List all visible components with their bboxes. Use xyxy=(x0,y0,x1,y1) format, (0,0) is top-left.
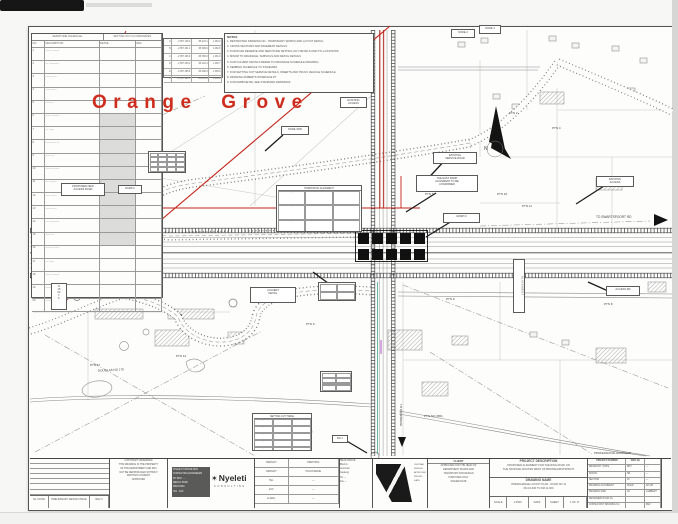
project-number-cell: SECTION xyxy=(588,478,626,483)
drawing-name-lines: INTERCHANGE LAYOUT PLAN - ROAD NO 11KM 1… xyxy=(490,483,587,491)
cell: ——— — xyxy=(45,206,100,218)
cell: ·· xyxy=(100,285,136,297)
label-line: NODE 2 xyxy=(453,31,474,34)
scale-sheet-cell: SHEET xyxy=(546,497,563,508)
scale-sheet-cell: 1:2500 xyxy=(507,497,528,508)
grid-cell xyxy=(273,419,292,426)
grid-cell: – xyxy=(254,440,273,447)
coord-cell: -2 857 266.9 xyxy=(172,54,192,60)
project-number-row: CONSULTANT DRAWING NoREV xyxy=(588,503,661,508)
map-text: TO BRONBERG xyxy=(399,404,402,426)
cell: 11 xyxy=(32,180,45,192)
coord-cell: 1 463.2 xyxy=(209,39,222,45)
coord-cell: -58 288.9 xyxy=(192,69,209,75)
label-box: RAMP D xyxy=(443,213,480,223)
label-box: NODE 2 xyxy=(451,29,475,38)
label-line: DETAIL xyxy=(252,292,295,295)
schedule-title-left: SERVITUDE SCHEDULE xyxy=(32,34,104,40)
coordinate-table: A-2 857 139.0-58 423.11 463.2B-2 857 201… xyxy=(163,38,223,78)
grid-cell xyxy=(333,191,361,206)
coord-cell: -2 857 139.0 xyxy=(172,39,192,45)
coord-cell: C xyxy=(164,54,172,60)
title-block: No / DATEPRELIMINARY DESIGN ISSUEREV 0 C… xyxy=(30,458,671,508)
notes-box: NOTES 1. RESTRICTED DRAWING NO - TEMPORA… xyxy=(224,33,374,93)
client-line: SIGNED DATE xyxy=(428,480,489,484)
coord-cell: -58 322.4 xyxy=(192,61,209,67)
col-header: REF xyxy=(136,41,162,47)
label-box: ACCESS RD xyxy=(606,286,640,296)
label-grid: –– xyxy=(320,284,355,300)
contact-row: E-MAIL— xyxy=(255,495,339,504)
scanned-drawing-page: Orange Grove SERVITUDE SCHEDULE SETTING … xyxy=(0,0,678,524)
contact-cell: E-MAIL xyxy=(255,495,289,503)
grid-cell xyxy=(336,385,351,390)
project-number-cell: — xyxy=(645,465,661,470)
map-text: PTN 8 xyxy=(604,303,613,306)
data-table-box: SETTING OUT TABLE––––– xyxy=(252,413,312,451)
label-box: EXISTINGSERVICE ROAD xyxy=(433,152,477,164)
drawing-name-zone: DRAWING NAME INTERCHANGE LAYOUT PLAN - R… xyxy=(490,478,587,497)
schedule-title-right: SETTING OUT CO-ORDINATES xyxy=(104,34,163,40)
coord-cell: 1 462.8 xyxy=(209,46,222,52)
contact-cell: POLOKWANE xyxy=(289,468,339,476)
cell: ——— —— xyxy=(45,167,100,179)
cell: ·· xyxy=(100,233,136,245)
servitude-schedule-table: SERVITUDE SCHEDULE SETTING OUT CO-ORDINA… xyxy=(31,33,163,298)
project-number-cell xyxy=(626,497,645,502)
cell: 19 xyxy=(32,285,45,297)
address-line: TEL · FAX xyxy=(173,490,209,494)
grid-cell xyxy=(158,167,167,172)
cell xyxy=(136,74,162,86)
contact-cell: BRANCH xyxy=(255,468,289,476)
project-number-cell: A0 xyxy=(626,490,645,495)
project-number-cell: REV xyxy=(645,503,661,508)
cell: 13 xyxy=(32,206,45,218)
map-text: PTN 11 xyxy=(522,205,532,208)
data-table-box: –––––– xyxy=(148,151,186,173)
cell xyxy=(136,259,162,271)
cell xyxy=(136,61,162,73)
project-number-cell: LAMBERT xyxy=(645,490,661,495)
grid-cell: – xyxy=(150,167,159,172)
scale-sheet-cell: SCALE xyxy=(490,497,507,508)
houses xyxy=(458,36,647,345)
grid-cell xyxy=(292,440,311,447)
project-number-cell: DRAWING SIZE xyxy=(588,490,626,495)
map-text: PROFESSIONAL ENGINEER xyxy=(594,452,631,455)
project-number-cell: PROJECT NUMBER xyxy=(588,459,626,464)
map-text: PTN 12 xyxy=(176,355,186,358)
project-number-cell: — xyxy=(645,478,661,483)
map-text: PTN NO 3651 xyxy=(424,415,443,418)
data-table-box: HORIZONTAL ALIGNMENT––– xyxy=(276,185,362,232)
scale-sheet-row: SCALE1:2500DATESHEET1 OF 17 xyxy=(490,497,587,508)
coord-cell: -58 389.6 xyxy=(192,46,209,52)
project-number-cell: DRAWING ALIGNMENT xyxy=(588,484,626,489)
project-number-cell xyxy=(626,503,645,508)
contact-cell: — xyxy=(289,486,339,494)
cell: 12 xyxy=(32,193,45,205)
cell xyxy=(136,127,162,139)
label-grid: ––– xyxy=(278,191,361,233)
cell: — ———— xyxy=(45,219,100,231)
cell: ·· xyxy=(100,61,136,73)
client-lines: APPROVED FOR THE HEAD OFDEPARTMENT ROADS… xyxy=(428,464,489,484)
cell: ——— — xyxy=(45,74,100,86)
grid-cell: – xyxy=(254,433,273,440)
contact-cell: FAX xyxy=(255,486,289,494)
cell: ·· xyxy=(100,154,136,166)
cell xyxy=(136,114,162,126)
coord-cell: -2 857 461.3 xyxy=(172,76,192,82)
project-number-cell: 16 xyxy=(626,478,645,483)
grid-cell xyxy=(337,284,355,292)
copyright-line: APPROVED xyxy=(110,478,167,482)
cell: —— — xyxy=(45,154,100,166)
grid-cell xyxy=(273,433,292,440)
grid-cell xyxy=(292,447,311,452)
project-number-cell: NR xyxy=(626,472,645,477)
cell xyxy=(136,299,162,311)
cell: 18 xyxy=(32,272,45,284)
cell: 10 xyxy=(32,167,45,179)
cell xyxy=(136,48,162,60)
area-title: Orange Grove xyxy=(92,92,309,114)
label-line: ACCESS xyxy=(342,102,366,105)
project-number-cell xyxy=(645,497,661,502)
project-description-lines: PROPOSED ALIGNMENT FOR THE RING ROAD ONT… xyxy=(490,464,587,472)
label-line: X· xyxy=(53,297,66,300)
label-box: THE EAST RAMPALIGNMENT TO BECONFIRMED xyxy=(416,175,478,192)
cell: 1 xyxy=(32,48,45,60)
project-number-cell: RPV xyxy=(626,465,645,470)
head-office-line: Fax — xyxy=(340,480,372,484)
coord-cell: B xyxy=(164,46,172,52)
schedule-row: 2— ————·· xyxy=(32,61,162,74)
grid-cell: – xyxy=(176,167,185,172)
label-box: EXISTINGACCESS xyxy=(596,176,634,187)
design-line: DATE xyxy=(414,480,426,484)
grid-cell xyxy=(273,440,292,447)
grid-cell: – xyxy=(278,191,306,206)
cell xyxy=(136,219,162,231)
contact-row: BRANCHPOLOKWANE xyxy=(255,468,339,477)
cell: 20 xyxy=(32,299,45,311)
cell xyxy=(100,127,136,139)
label-line: ACCESS ROAD xyxy=(63,188,104,191)
grid-cell xyxy=(292,426,311,433)
label-box: NODE 3 xyxy=(479,25,501,34)
cell xyxy=(136,233,162,245)
cell: —— — xyxy=(45,233,100,245)
label-box: CULVERTDETAIL xyxy=(250,287,296,303)
map-text: N xyxy=(484,147,488,152)
design-approval-note: CENTRALDESIGNAPPROVEDPR ENGDATE xyxy=(414,459,426,508)
coord-cell: -2 857 330.2 xyxy=(172,61,192,67)
schedule-row: 6—— ———·· xyxy=(32,114,162,127)
label-box: RAMP A xyxy=(118,185,142,194)
department-logo-section: CENTRALDESIGNAPPROVEDPR ENGDATE xyxy=(373,459,428,508)
label-line: ACCESS xyxy=(598,181,633,184)
cell: 6 xyxy=(32,114,45,126)
map-text: TO SWARTSPOORT RD xyxy=(596,216,631,219)
grid-cell: – xyxy=(337,292,355,300)
schedule-row: 16——— —— xyxy=(32,246,162,259)
edge-strip xyxy=(662,459,671,508)
cell xyxy=(100,246,136,258)
cell: ·· xyxy=(100,206,136,218)
schedule-row: 10——— ——· xyxy=(32,167,162,180)
coord-cell: 1 459.6 xyxy=(209,69,222,75)
cell: —— ——— xyxy=(45,114,100,126)
col-header: DESCRIPTION xyxy=(45,41,100,47)
cell: — ———— xyxy=(45,61,100,73)
grid-cell xyxy=(292,419,311,426)
consultant-subtitle: CONSULTING xyxy=(214,485,246,488)
grid-cell xyxy=(273,447,292,452)
coord-cell: 1 460.7 xyxy=(209,61,222,67)
project-number-table: PROJECT NUMBERDWG NoDRAWN BY / DATERPV—R… xyxy=(588,459,662,508)
col-header: NO xyxy=(32,41,45,47)
map-text: PTN 2 xyxy=(509,112,518,115)
south-arrow-icon xyxy=(398,437,406,447)
coord-cell: A xyxy=(164,39,172,45)
label-box: EXISTINGACCESS xyxy=(340,97,367,108)
schedule-row: 7— —— xyxy=(32,127,162,140)
star-icon: ✶ xyxy=(211,474,218,483)
project-number-cell: ROAD xyxy=(626,484,645,489)
consultant-address: NYELETI CONSULTINGCONSULTING ENGINEERSPO… xyxy=(172,467,210,497)
grid-cell: – xyxy=(254,426,273,433)
scale-sheet-cell: 1 OF 17 xyxy=(564,497,587,508)
schedule-row: 17— ——·· xyxy=(32,259,162,272)
cell xyxy=(100,167,136,179)
coord-row: F-2 857 461.3-58 255.31 458.4 xyxy=(164,76,222,83)
contact-row: BRANCHPRETORIA xyxy=(255,459,339,468)
contact-cell: TEL xyxy=(255,477,289,485)
cell: — —— xyxy=(45,259,100,271)
project-description-section: PROJECT DESCRIPTION PROPOSED ALIGNMENT F… xyxy=(490,459,588,508)
project-number-cell: DWG No xyxy=(626,459,645,464)
coord-cell: 1 458.4 xyxy=(209,76,222,82)
label-line: NODE 3 xyxy=(481,27,500,30)
schedule-row: 8———— —··· xyxy=(32,140,162,153)
cell xyxy=(136,285,162,297)
cell: ·· xyxy=(100,140,136,152)
grid-cell xyxy=(167,167,176,172)
east-arrow-icon xyxy=(654,214,668,226)
cell: ———— — xyxy=(45,140,100,152)
label-box: NODE 1500 xyxy=(281,126,309,135)
map-text: PTN 17 xyxy=(90,364,100,367)
grid-cell xyxy=(305,191,333,206)
label-line: ALIGNMENT xyxy=(520,261,523,312)
note-line: 9. FOR KERB DETAIL SEE STANDARD DRAWINGS xyxy=(227,80,371,85)
contact-cell: — xyxy=(289,495,339,503)
grid-cell xyxy=(305,220,333,232)
project-description-line: THE NATIONAL ROUTES WEST OF BRONKHORSTSP… xyxy=(490,468,587,472)
scale-sheet-cell: DATE xyxy=(529,497,546,508)
map-text: PTN 4 xyxy=(552,127,561,130)
grid-cell: – xyxy=(254,447,273,452)
label-line: BH 1 xyxy=(334,437,347,440)
project-number-cell: — xyxy=(645,472,661,477)
coord-cell: F xyxy=(164,76,172,82)
grid-cell xyxy=(333,205,361,220)
schedule-header: SERVITUDE SCHEDULE SETTING OUT CO-ORDINA… xyxy=(32,34,162,41)
cell: 15 xyxy=(32,233,45,245)
grid-cell: – xyxy=(320,284,338,292)
revision-table: No / DATEPRELIMINARY DESIGN ISSUEREV 0 xyxy=(30,459,110,508)
map-text: PTN 9 xyxy=(446,298,455,301)
cell: 3 xyxy=(32,74,45,86)
cell xyxy=(100,272,136,284)
label-line: RAMP A xyxy=(120,187,141,190)
project-number-cell: AP-NO xyxy=(645,484,661,489)
coord-cell: -58 423.1 xyxy=(192,39,209,45)
contact-table: BRANCHPRETORIABRANCHPOLOKWANETEL—FAX—E-M… xyxy=(255,459,340,508)
project-number-cell: DESIGNERS PLAN No xyxy=(588,497,626,502)
project-number-cell: CONSULTANT DRAWING No xyxy=(588,503,626,508)
coord-cell: -58 356.0 xyxy=(192,54,209,60)
grid-cell xyxy=(273,426,292,433)
coord-cell: -58 255.3 xyxy=(192,76,209,82)
coord-row: D-2 857 330.2-58 322.41 460.7 xyxy=(164,61,222,68)
consultant-brand: NYELETI CONSULTINGCONSULTING ENGINEERSPO… xyxy=(168,459,255,508)
schedule-row: 14— ———— xyxy=(32,219,162,232)
coord-row: B-2 857 201.4-58 389.61 462.8 xyxy=(164,46,222,53)
grid-cell: – xyxy=(278,205,306,220)
label-grid: –––––– xyxy=(150,153,185,172)
grid-cell xyxy=(292,433,311,440)
col-header: DETAIL xyxy=(100,41,136,47)
label-line: RAMP D xyxy=(445,215,479,218)
coord-row: E-2 857 395.8-58 288.91 459.6 xyxy=(164,69,222,76)
cell: — —— xyxy=(45,127,100,139)
project-number-cell: DRAWN BY / DATE xyxy=(588,465,626,470)
cell xyxy=(100,48,136,60)
label-line: ACCESS RD xyxy=(608,288,639,291)
coord-row: A-2 857 139.0-58 423.11 463.2 xyxy=(164,39,222,46)
schedule-colheads: NODESCRIPTIONDETAILREF xyxy=(32,41,162,48)
grid-cell: – xyxy=(254,419,273,426)
data-table-box: ––– xyxy=(320,371,352,392)
copyright-note: COPYRIGHT RESERVEDTHIS DRAWING IS THE PR… xyxy=(110,459,168,508)
contact-cell: — xyxy=(289,477,339,485)
schedule-row: 3——— — xyxy=(32,74,162,87)
department-logo-mark xyxy=(376,464,412,502)
coord-cell: D xyxy=(164,61,172,67)
cell: 2 xyxy=(32,61,45,73)
label-line: SERVICE ROAD xyxy=(435,157,476,160)
coord-cell: -2 857 201.4 xyxy=(172,46,192,52)
schedule-row: 13——— —··· xyxy=(32,206,162,219)
contact-row: TEL— xyxy=(255,477,339,486)
consultant-logo: ✶Nyeleti xyxy=(211,473,247,483)
cell: 16 xyxy=(32,246,45,258)
project-number-cell: ROUTE xyxy=(588,472,626,477)
cell xyxy=(100,299,136,311)
map-text: PTN 10 xyxy=(497,193,507,196)
cell xyxy=(136,272,162,284)
notes-list: 1. RESTRICTED DRAWING NO - TEMPORARY WOR… xyxy=(227,39,371,85)
cell: ·· xyxy=(100,259,136,271)
label-box: ALIGNMENT xyxy=(513,259,525,313)
contact-cell: BRANCH xyxy=(255,459,289,467)
label-grid: ––––– xyxy=(254,419,311,452)
grid-cell xyxy=(320,292,338,300)
label-box: N1502Y·X· xyxy=(51,283,67,310)
cell: —— ——— xyxy=(45,48,100,60)
grid-cell xyxy=(305,205,333,220)
cell: 8 xyxy=(32,140,45,152)
cell xyxy=(100,219,136,231)
project-description-zone: PROJECT DESCRIPTION PROPOSED ALIGNMENT F… xyxy=(490,459,587,478)
contact-row: FAX— xyxy=(255,486,339,495)
cell: · xyxy=(136,206,162,218)
revision-footer-cell: REV 0 xyxy=(90,496,109,508)
contact-cell: PRETORIA xyxy=(289,459,339,467)
cell xyxy=(100,193,136,205)
label-grid: ––– xyxy=(322,373,351,391)
coord-cell: E xyxy=(164,69,172,75)
data-table-box: –– xyxy=(318,282,356,301)
schedule-row: 15—— —·· xyxy=(32,233,162,246)
cell: 9 xyxy=(32,154,45,166)
label-line: NODE 1500 xyxy=(283,128,308,131)
coord-cell: 1 461.9 xyxy=(209,54,222,60)
grid-cell xyxy=(333,220,361,232)
head-office-note: HEAD OFFICEBlock ACenturionGautengTel —F… xyxy=(340,459,373,508)
grid-cell: – xyxy=(322,385,337,390)
cell: ——— —— xyxy=(45,246,100,258)
grid-cell: – xyxy=(278,220,306,232)
cell xyxy=(100,74,136,86)
schedule-row: 1—— ——— xyxy=(32,48,162,61)
revision-footer-cell: PRELIMINARY DESIGN ISSUE xyxy=(49,496,90,508)
label-box: PROPOSED NEWACCESS ROAD xyxy=(61,183,105,196)
label-line: CONFIRMED xyxy=(418,183,477,186)
label-box: BH 1 xyxy=(332,435,348,443)
cell: 7 xyxy=(32,127,45,139)
client-approval: CLIENT APPROVED FOR THE HEAD OFDEPARTMEN… xyxy=(428,459,490,508)
cell: 5 xyxy=(32,101,45,113)
cell: 17 xyxy=(32,259,45,271)
cell xyxy=(136,246,162,258)
map-text: PTN 5 xyxy=(425,193,434,196)
revision-footer: No / DATEPRELIMINARY DESIGN ISSUEREV 0 xyxy=(30,495,109,508)
cell xyxy=(136,193,162,205)
map-text: PTN 6 xyxy=(306,323,315,326)
project-number-cell xyxy=(645,459,661,464)
consultant-name: Nyeleti xyxy=(219,473,247,483)
revision-footer-cell: No / DATE xyxy=(30,496,49,508)
cell: 14 xyxy=(32,219,45,231)
coord-row: C-2 857 266.9-58 356.01 461.9 xyxy=(164,54,222,61)
cell: ·· xyxy=(100,114,136,126)
drawing-name-line: KM 10.000 TO KM 11.000 xyxy=(490,487,587,491)
cell: 4 xyxy=(32,88,45,100)
schedule-row: 9—— —·· xyxy=(32,154,162,167)
coord-cell: -2 857 395.8 xyxy=(172,69,192,75)
